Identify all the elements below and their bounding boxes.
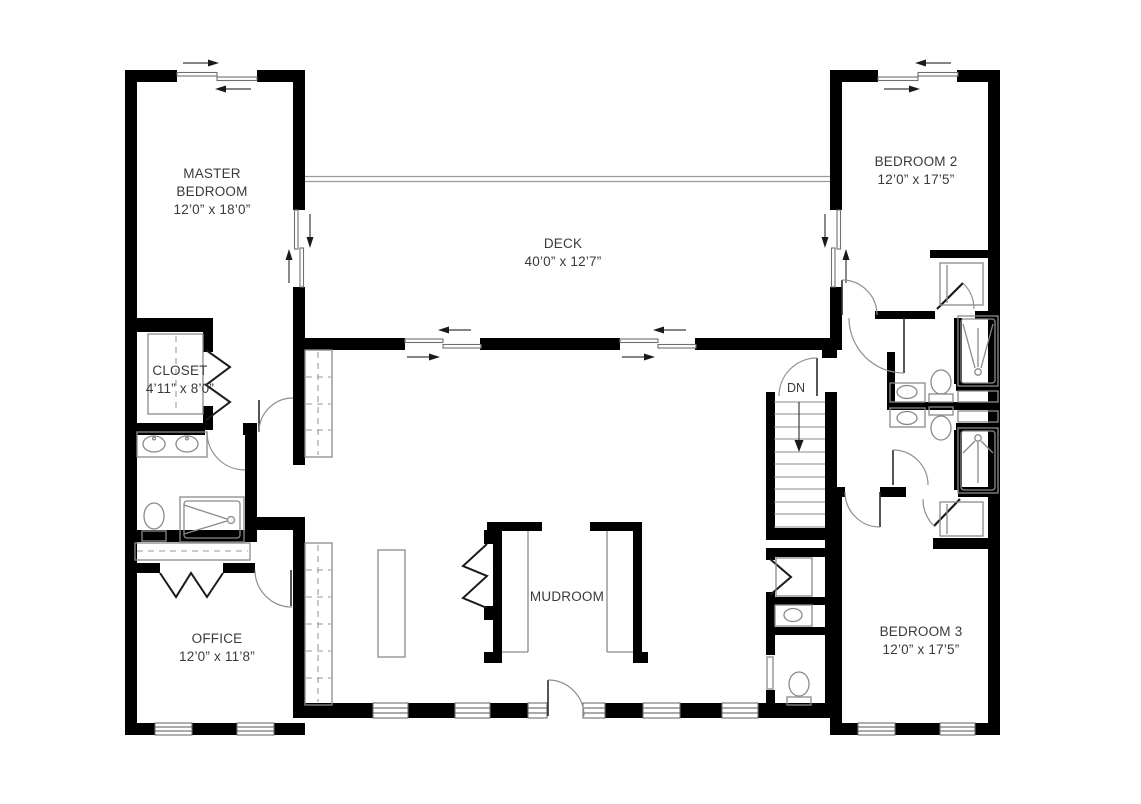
window (643, 703, 680, 718)
floor-plan-drawing (0, 0, 1141, 804)
window (237, 723, 274, 735)
window (373, 703, 408, 718)
floor-plan: MASTER BEDROOM 12’0” x 18’0” BEDROOM 2 1… (0, 0, 1141, 804)
window (155, 723, 192, 735)
window (940, 723, 975, 735)
window (583, 703, 605, 718)
window (722, 703, 758, 718)
window (455, 703, 490, 718)
window (858, 723, 895, 735)
window (528, 703, 547, 718)
